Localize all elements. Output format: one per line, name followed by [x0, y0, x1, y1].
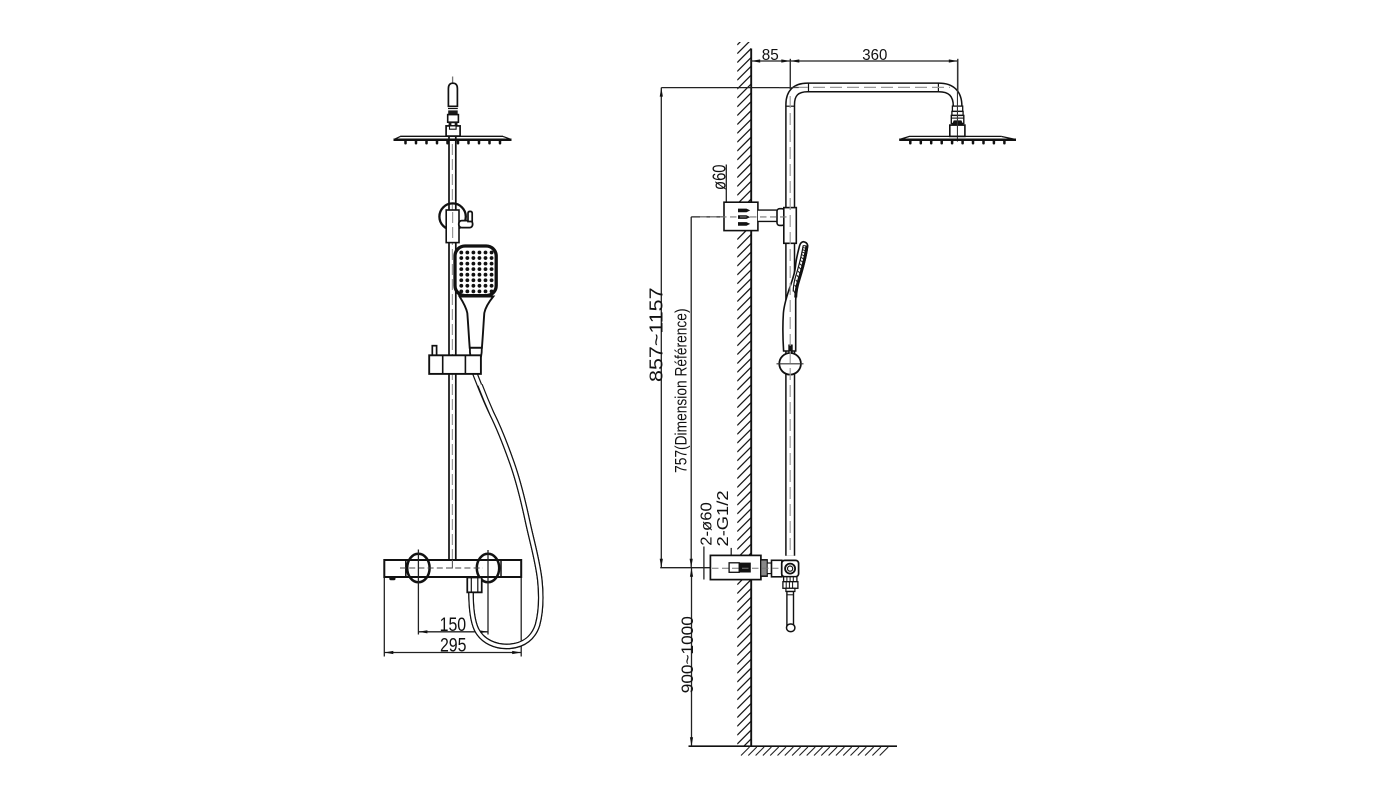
- svg-text:ø60: ø60: [710, 164, 730, 190]
- svg-text:150: 150: [440, 615, 467, 636]
- svg-text:85: 85: [762, 47, 779, 64]
- svg-text:295: 295: [440, 635, 467, 656]
- svg-text:900~1000: 900~1000: [678, 616, 697, 693]
- svg-text:360: 360: [862, 47, 887, 64]
- svg-text:757(Dimension Référence): 757(Dimension Référence): [672, 308, 690, 473]
- svg-text:857~1157: 857~1157: [646, 287, 666, 382]
- svg-text:2-G1/2: 2-G1/2: [715, 490, 732, 546]
- svg-text:2-ø60: 2-ø60: [699, 502, 716, 546]
